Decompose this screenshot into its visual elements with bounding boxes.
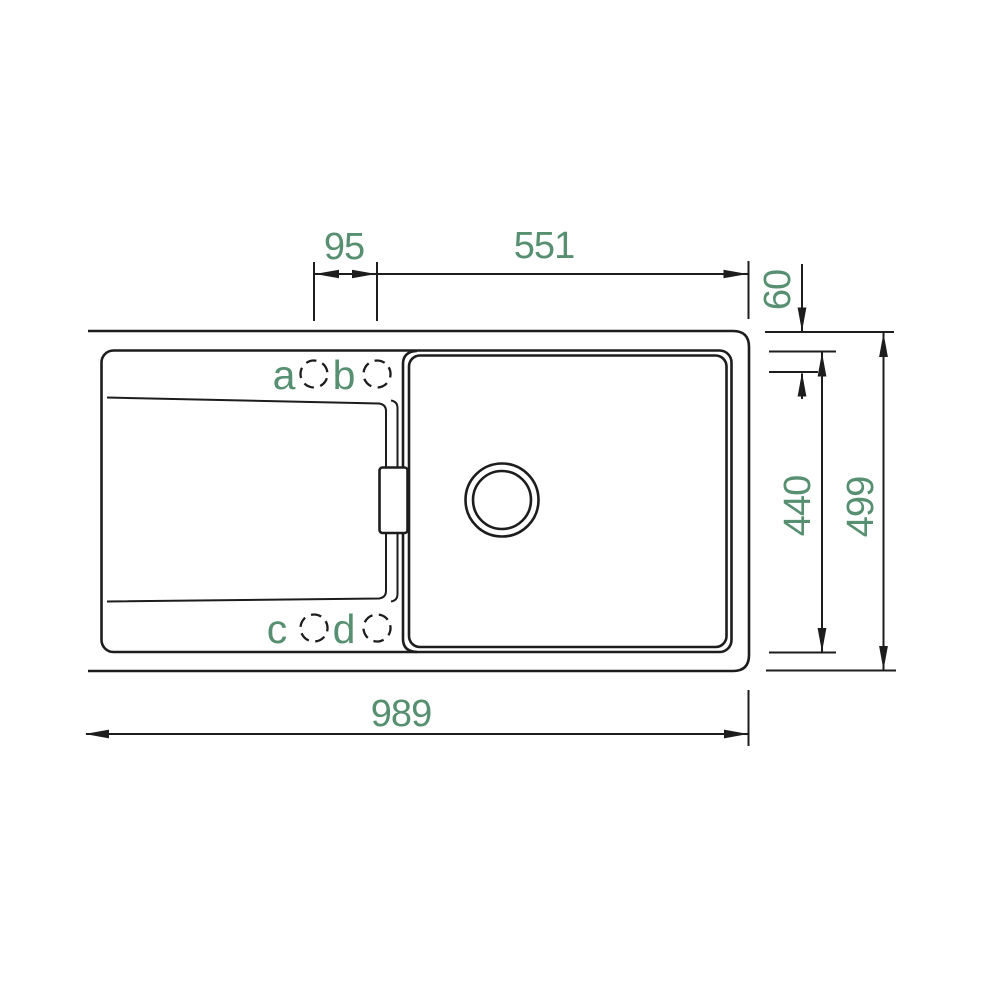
arrowhead-right-95	[352, 270, 376, 278]
tap-hole-a-circle	[297, 357, 331, 391]
dim-label-989: 989	[371, 693, 431, 735]
dim-label-60: 60	[757, 270, 799, 310]
tap-hole-label-c: c	[267, 606, 288, 652]
dim-label-440: 440	[777, 476, 819, 536]
arrowhead-down-499	[879, 646, 888, 670]
drainer-board	[107, 398, 386, 602]
sink-outer-edge	[88, 331, 749, 671]
tap-hole-d-circle	[361, 612, 393, 644]
tap-hole-b-circle	[359, 356, 396, 393]
drain-inner-circle	[473, 471, 531, 529]
tap-hole-label-a: a	[273, 352, 296, 398]
arrowhead-left-95	[315, 270, 339, 278]
sink-outline	[88, 331, 749, 671]
bowl	[409, 356, 727, 648]
tap-hole-c-circle	[295, 609, 333, 647]
labels: 95 551 60 440 499 989 a b c d	[267, 225, 882, 735]
dim-label-95: 95	[324, 226, 364, 268]
arrowhead-up-60	[798, 373, 807, 397]
arrowhead-up-440	[818, 353, 827, 377]
arrowhead-right-551	[724, 270, 748, 278]
tap-hole-label-d: d	[333, 606, 356, 652]
divider-bridge	[380, 468, 408, 534]
tap-hole-label-b: b	[333, 352, 356, 398]
dim-label-551: 551	[514, 225, 574, 267]
arrowhead-down-440	[818, 628, 827, 652]
arrowhead-up-499	[879, 333, 888, 357]
dimension-lines	[85, 264, 888, 738]
sink-dimension-diagram: 95 551 60 440 499 989 a b c d	[0, 0, 992, 992]
dim-label-499: 499	[840, 477, 882, 537]
sink-rim	[102, 351, 732, 653]
drain-outer-circle	[466, 464, 539, 537]
technical-drawing-page: 95 551 60 440 499 989 a b c d	[0, 0, 992, 992]
arrowhead-left-989	[85, 730, 109, 739]
arrowhead-right-989	[724, 730, 748, 739]
